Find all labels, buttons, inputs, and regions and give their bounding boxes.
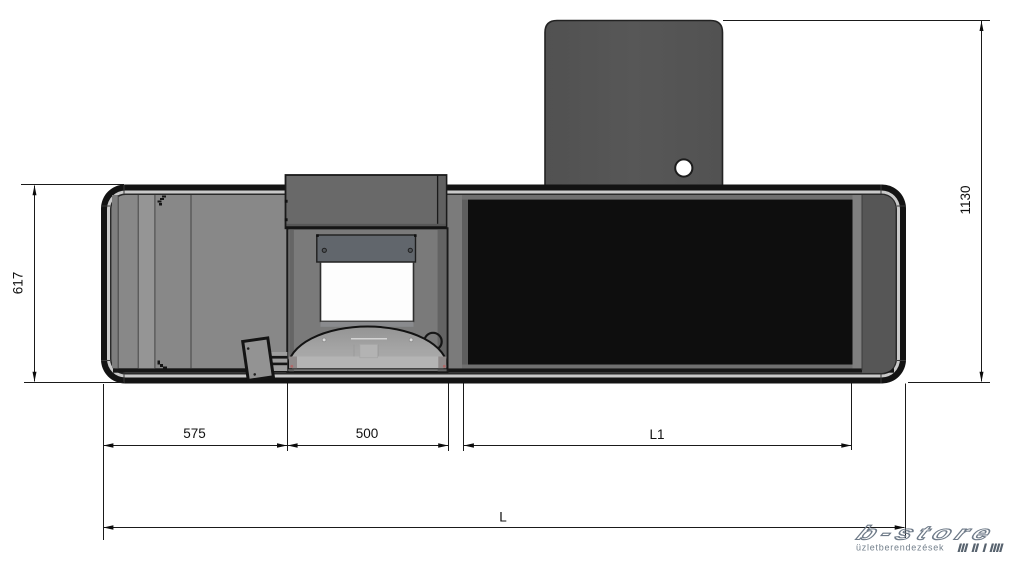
svg-text:üzletberendezések: üzletberendezések (856, 543, 944, 553)
svg-text:617: 617 (11, 272, 26, 295)
svg-text:L1: L1 (649, 427, 664, 442)
svg-text:L: L (499, 510, 507, 525)
svg-text:1130: 1130 (958, 185, 973, 214)
svg-text:b-store: b-store (852, 523, 1001, 544)
svg-text:575: 575 (183, 426, 206, 441)
svg-text:500: 500 (356, 426, 379, 441)
